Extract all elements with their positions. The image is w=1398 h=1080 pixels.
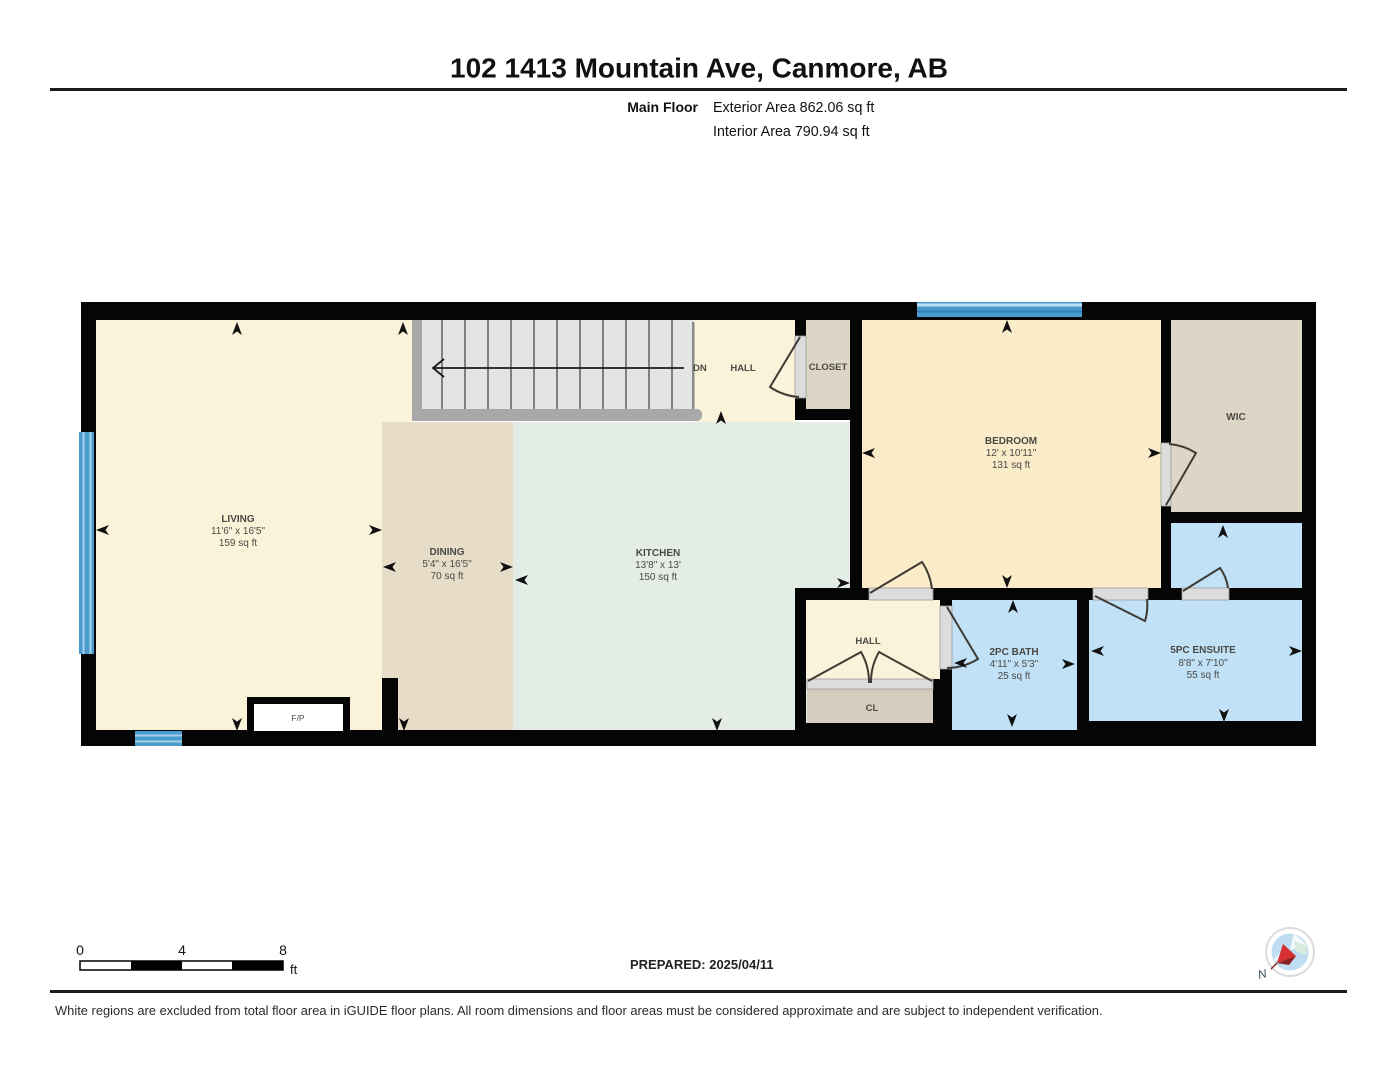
svg-text:4'11" x 5'3": 4'11" x 5'3" xyxy=(990,659,1039,670)
svg-text:25 sq ft: 25 sq ft xyxy=(998,671,1031,682)
svg-text:White regions are excluded fro: White regions are excluded from total fl… xyxy=(55,1003,1103,1018)
svg-text:HALL: HALL xyxy=(730,363,756,374)
svg-text:12' x 10'11": 12' x 10'11" xyxy=(986,448,1037,459)
svg-text:131 sq ft: 131 sq ft xyxy=(992,460,1031,471)
svg-text:F/P: F/P xyxy=(291,713,305,723)
svg-text:55 sq ft: 55 sq ft xyxy=(1187,670,1220,681)
svg-text:BEDROOM: BEDROOM xyxy=(985,436,1037,447)
svg-text:KITCHEN: KITCHEN xyxy=(636,548,680,559)
svg-text:102 1413 Mountain Ave, Canmore: 102 1413 Mountain Ave, Canmore, AB xyxy=(450,53,948,84)
svg-text:4: 4 xyxy=(178,942,186,958)
svg-text:2PC BATH: 2PC BATH xyxy=(989,647,1038,658)
svg-text:DN: DN xyxy=(693,363,707,374)
svg-text:DINING: DINING xyxy=(430,547,465,558)
svg-text:13'8" x 13': 13'8" x 13' xyxy=(635,560,681,571)
svg-text:ft: ft xyxy=(290,962,298,977)
svg-text:11'6" x 16'5": 11'6" x 16'5" xyxy=(211,526,266,537)
svg-text:8'8" x 7'10": 8'8" x 7'10" xyxy=(1178,658,1228,669)
svg-text:159 sq ft: 159 sq ft xyxy=(219,538,258,549)
svg-text:PREPARED: 2025/04/11: PREPARED: 2025/04/11 xyxy=(630,957,774,972)
svg-text:8: 8 xyxy=(279,942,287,958)
svg-text:CLOSET: CLOSET xyxy=(809,362,848,373)
svg-text:Interior Area 790.94 sq ft: Interior Area 790.94 sq ft xyxy=(713,124,870,140)
svg-text:0: 0 xyxy=(76,942,84,958)
svg-text:N: N xyxy=(1256,966,1268,982)
svg-text:Main Floor: Main Floor xyxy=(627,99,698,115)
svg-text:WIC: WIC xyxy=(1226,412,1245,423)
svg-text:HALL: HALL xyxy=(855,636,881,647)
svg-text:Exterior Area 862.06 sq ft: Exterior Area 862.06 sq ft xyxy=(713,100,874,116)
svg-text:5PC ENSUITE: 5PC ENSUITE xyxy=(1170,645,1236,656)
svg-text:5'4" x 16'5": 5'4" x 16'5" xyxy=(422,559,472,570)
svg-text:70 sq ft: 70 sq ft xyxy=(431,571,464,582)
svg-text:CL: CL xyxy=(866,703,879,714)
svg-text:LIVING: LIVING xyxy=(221,514,255,525)
svg-text:150 sq ft: 150 sq ft xyxy=(639,572,678,583)
